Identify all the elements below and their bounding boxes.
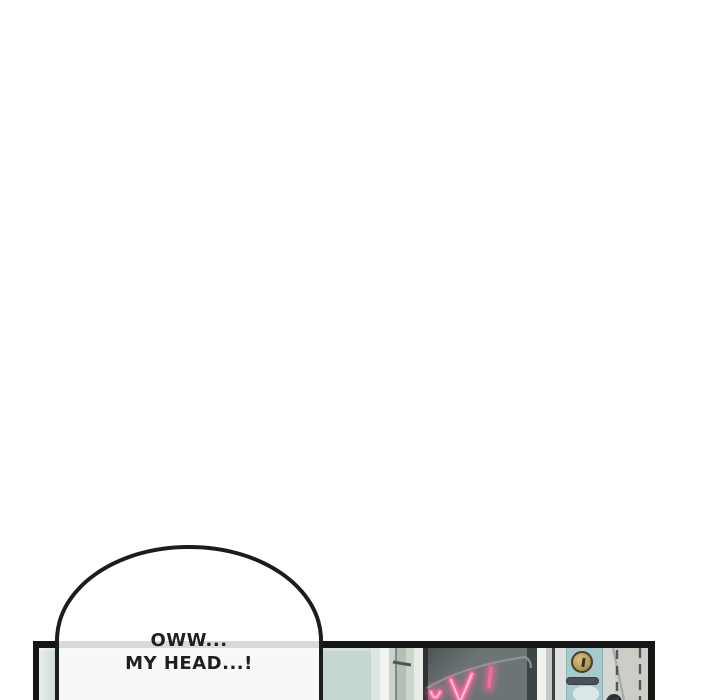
speech-text: OWW... MY HEAD...! xyxy=(59,629,319,675)
speech-bubble: OWW... MY HEAD...! xyxy=(55,545,323,700)
wall-slant-line xyxy=(613,648,624,700)
webtoon-page: OWW... MY HEAD...! xyxy=(0,0,720,700)
speech-line-1: OWW... xyxy=(59,629,319,652)
speech-line-2: MY HEAD...! xyxy=(59,652,319,675)
door-molding-line xyxy=(427,657,531,688)
